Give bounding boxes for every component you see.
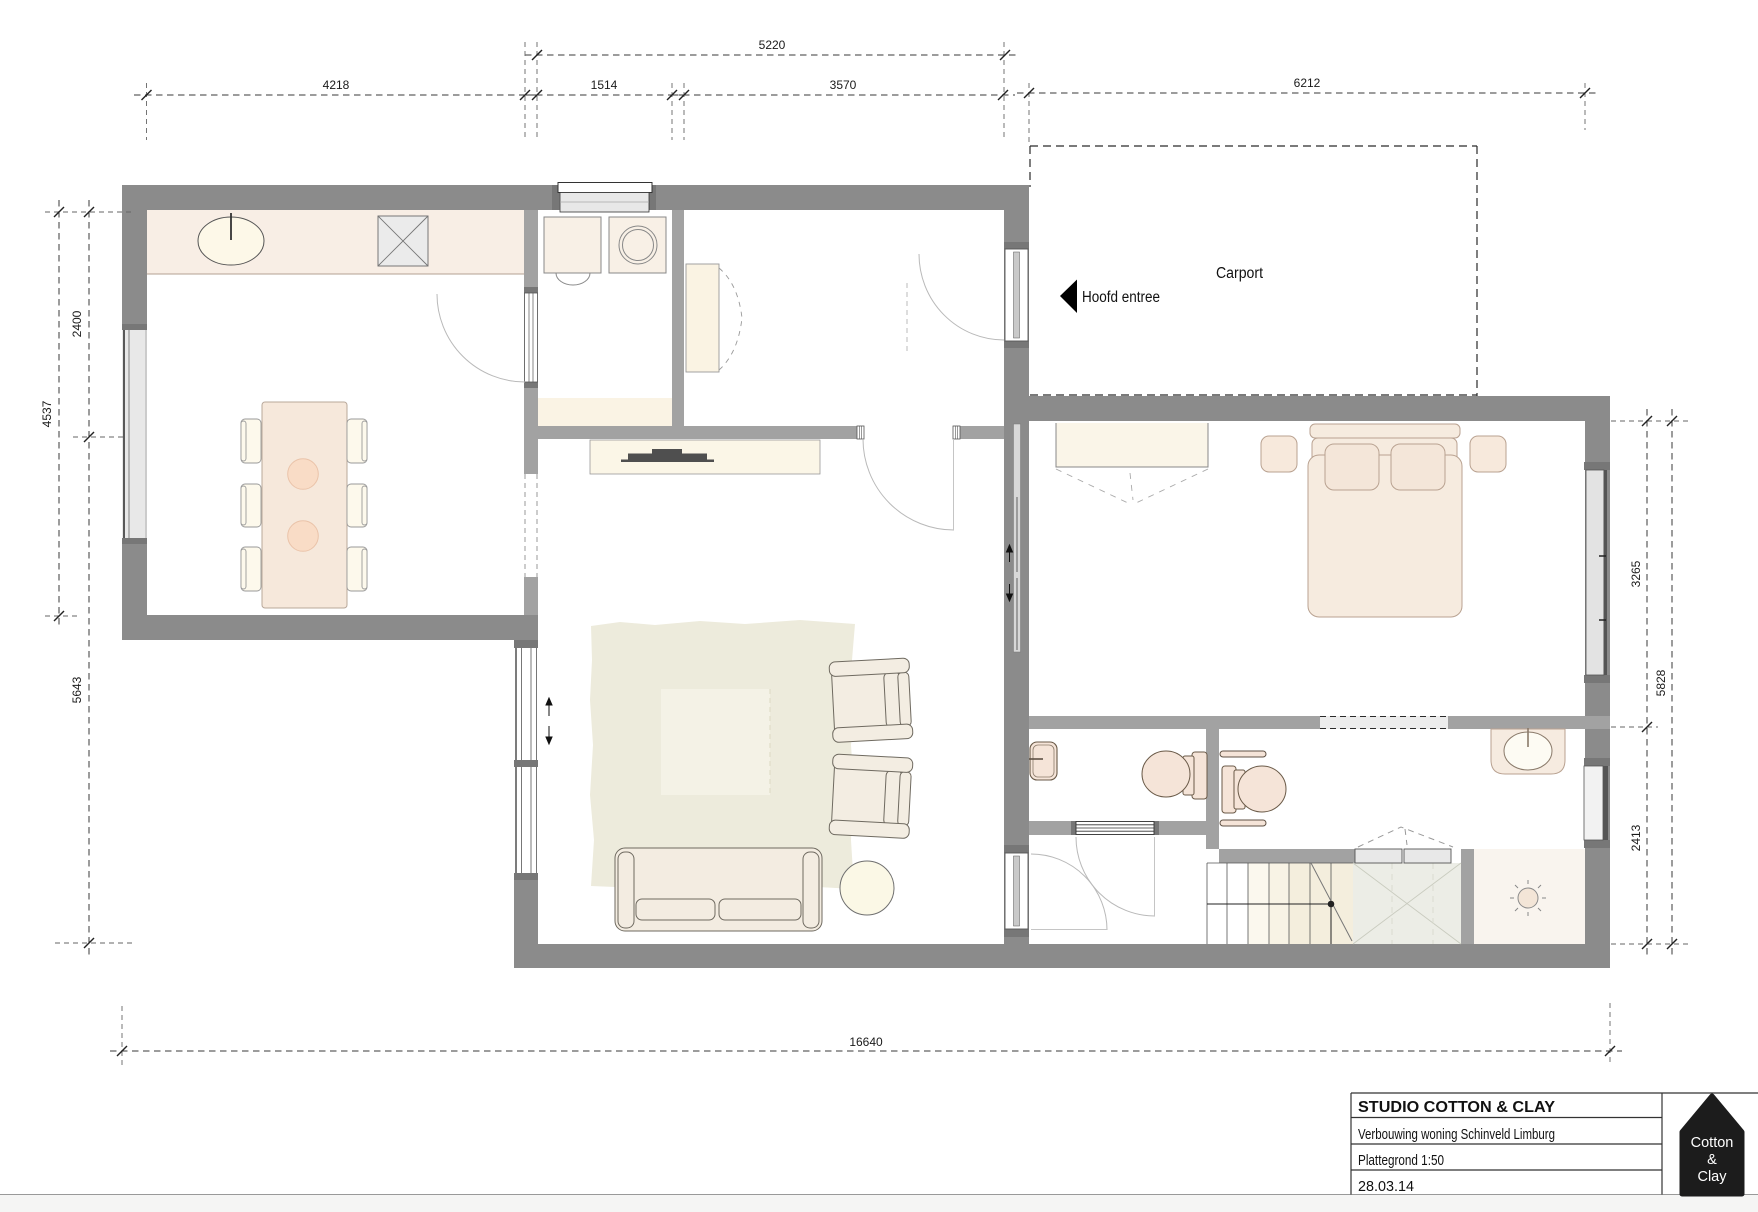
svg-text:STUDIO COTTON & CLAY: STUDIO COTTON & CLAY (1358, 1099, 1555, 1116)
svg-text:Carport: Carport (1216, 265, 1264, 282)
svg-text:28.03.14: 28.03.14 (1358, 1178, 1414, 1195)
svg-text:6212: 6212 (1294, 76, 1321, 90)
svg-text:3265: 3265 (1629, 560, 1643, 587)
svg-text:&: & (1707, 1152, 1717, 1168)
svg-text:5643: 5643 (70, 676, 84, 703)
svg-text:Plattegrond 1:50: Plattegrond 1:50 (1358, 1152, 1444, 1169)
svg-text:Clay: Clay (1697, 1169, 1727, 1185)
svg-text:2400: 2400 (70, 310, 84, 337)
svg-text:Cotton: Cotton (1691, 1135, 1734, 1151)
svg-text:5828: 5828 (1654, 669, 1668, 696)
svg-text:1514: 1514 (591, 78, 618, 92)
svg-text:Hoofd entree: Hoofd entree (1082, 289, 1160, 306)
svg-text:4537: 4537 (40, 400, 54, 427)
svg-text:16640: 16640 (849, 1035, 883, 1049)
svg-text:4218: 4218 (323, 78, 350, 92)
svg-text:3570: 3570 (830, 78, 857, 92)
svg-text:5220: 5220 (759, 38, 786, 52)
svg-text:Verbouwing woning Schinveld Li: Verbouwing woning Schinveld Limburg (1358, 1126, 1555, 1143)
svg-text:2413: 2413 (1629, 824, 1643, 851)
